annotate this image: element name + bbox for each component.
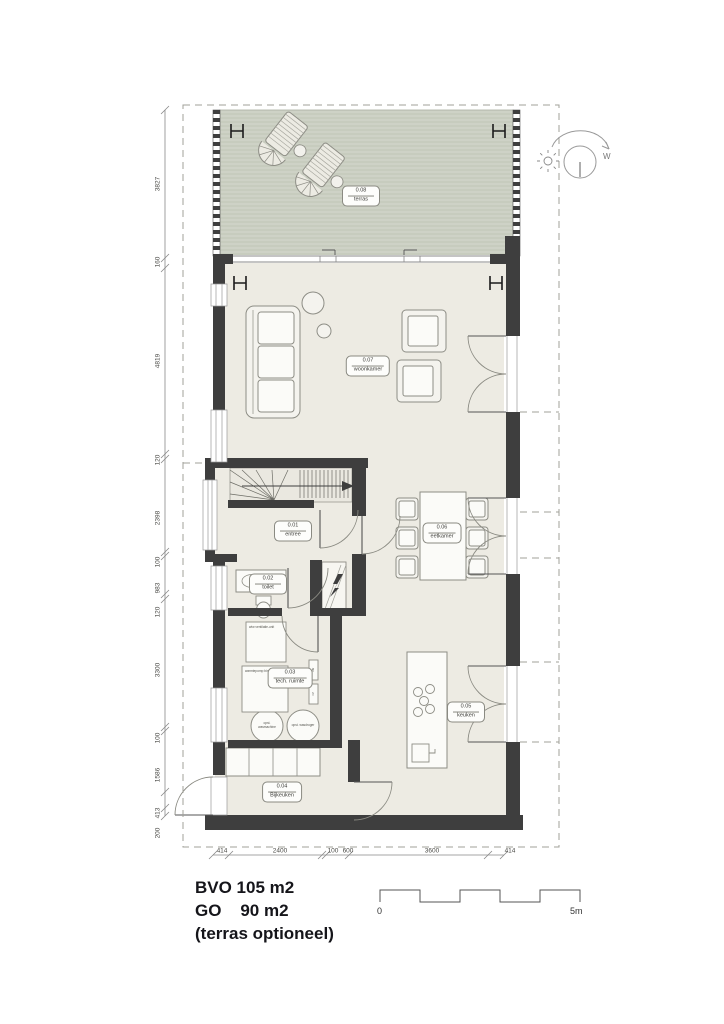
room-label-toilet: 0.02 toilet [249,574,287,595]
dimension-label: 120 [155,455,162,466]
dimension-label: 100 [155,557,162,568]
sun-path-symbol [537,131,609,178]
room-label-woonkamer: 0.07 woonkamer [346,356,390,377]
dimension-label: 2398 [155,511,162,525]
terrace-deck [220,110,513,256]
legend-bvo: BVO 105 m2 [195,878,294,898]
room-number: 0.08 [348,188,374,197]
equipment-label: cv [312,692,316,695]
room-label-keuken: 0.05 keuken [447,702,485,723]
sofa [246,306,300,418]
scale-bar [380,890,580,902]
room-number: 0.01 [280,523,306,532]
terrace-screen-left [213,110,220,256]
room-name: terras [348,197,374,205]
meter-cabinet [322,562,346,612]
dimension-label: 3600 [425,848,439,855]
dimension-label: 120 [155,607,162,618]
scale-start-label: 0 [377,906,382,916]
sun-icon [537,150,559,172]
dimension-label: 200 [155,828,162,839]
room-label-tech-ruimte: 0.03 tech. ruimte [268,668,313,689]
room-name: keuken [453,713,479,721]
dimension-label: 3300 [155,663,162,677]
armchair [402,310,446,352]
dryer-label: opst. wasdroger [291,724,315,728]
room-number: 0.04 [268,784,296,793]
west-label: W [603,152,611,161]
legend-terras-optioneel: (terras optioneel) [195,924,334,944]
room-number: 0.06 [429,525,456,534]
north-indicator [564,146,596,178]
room-label-eetkamer: 0.06 eetkamer [423,523,462,544]
room-label-terras: 0.08 terras [342,186,380,207]
room-label-bijkeuken: 0.04 Bijkeuken [262,782,302,803]
room-name: toilet [255,585,281,593]
room-name: Bijkeuken [268,793,296,801]
room-name: tech. ruimte [274,679,307,687]
floor-plan-page: 0.08 terras 0.07 woonkamer 0.01 entree 0… [0,0,724,1024]
scale-end-label: 5m [570,906,583,916]
dimension-label: 983 [155,583,162,594]
terrace-screen-right [513,110,520,256]
dimension-label: 100 [328,848,339,855]
dimension-line-bottom [209,851,508,859]
floor-plan-drawing [0,0,724,1024]
dimension-label: 414 [217,848,228,855]
washer-label: opst. wasmachine [255,722,279,730]
armchair [397,360,441,402]
room-label-entree: 0.01 entree [274,521,312,542]
stairs [230,468,354,502]
dimension-label: 414 [505,848,516,855]
dimension-label: 2400 [273,848,287,855]
dimension-label: 413 [155,808,162,819]
room-number: 0.03 [274,670,307,679]
dimension-label: 4819 [155,354,162,368]
dimension-label: 3827 [155,177,162,191]
kitchen-island [407,652,447,768]
front-door [175,777,227,815]
legend-go: GO 90 m2 [195,901,289,921]
dimension-line-left [161,106,169,820]
dimension-label: 1586 [155,768,162,782]
room-number: 0.05 [453,704,479,713]
room-number: 0.02 [255,576,281,585]
dimension-label: 600 [343,848,354,855]
room-name: eetkamer [429,534,456,542]
room-name: entree [280,532,306,540]
room-name: woonkamer [352,367,384,375]
equipment-label: wtw ventilatie-unit [249,626,283,630]
dimension-label: 100 [155,733,162,744]
counter [226,748,320,776]
dimension-label: 160 [155,257,162,268]
room-number: 0.07 [352,358,384,367]
